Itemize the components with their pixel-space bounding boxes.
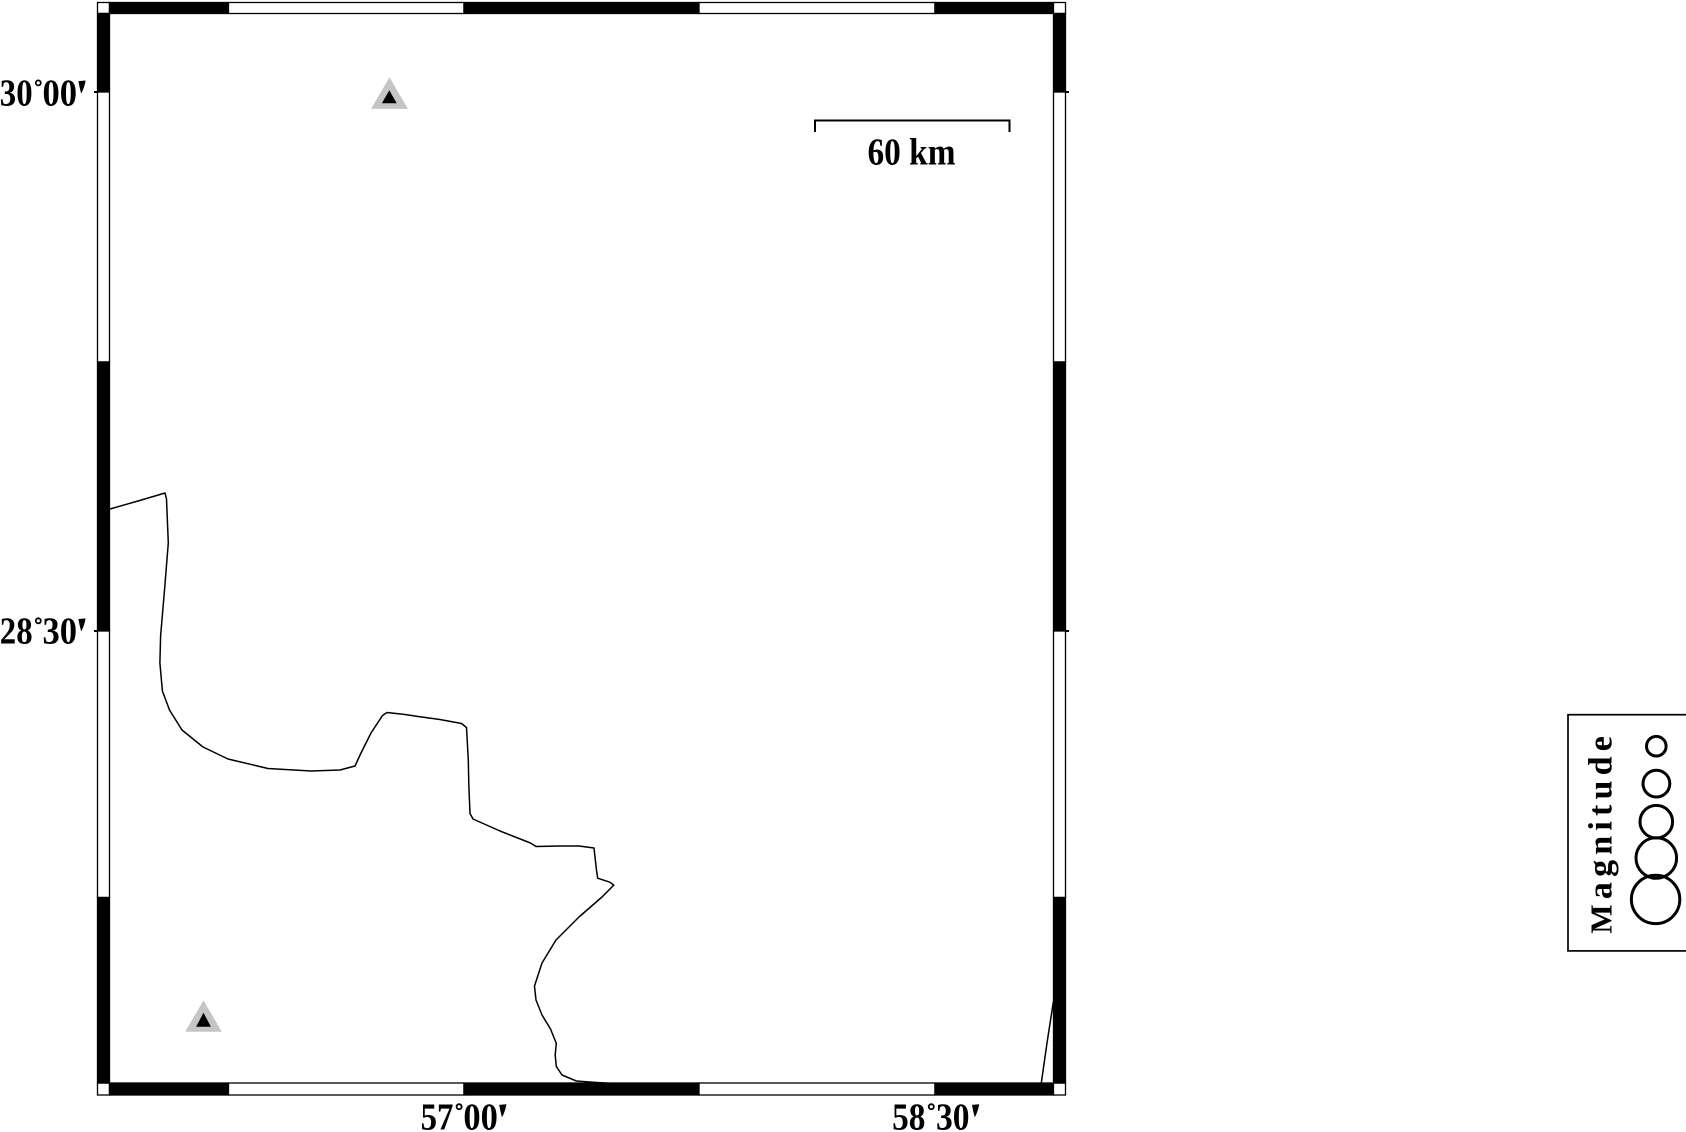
svg-text:57: 57 xyxy=(421,1097,454,1132)
svg-text:30: 30 xyxy=(0,73,33,115)
svg-text:58: 58 xyxy=(892,1097,925,1132)
svg-text:00: 00 xyxy=(463,1097,498,1132)
svg-text:60 km: 60 km xyxy=(868,132,956,174)
svg-text:28: 28 xyxy=(0,611,33,653)
svg-text:00: 00 xyxy=(43,73,78,115)
svg-text:30: 30 xyxy=(936,1097,970,1132)
svg-text:30: 30 xyxy=(43,611,78,653)
svg-text:Magnitude: Magnitude xyxy=(1583,731,1620,934)
